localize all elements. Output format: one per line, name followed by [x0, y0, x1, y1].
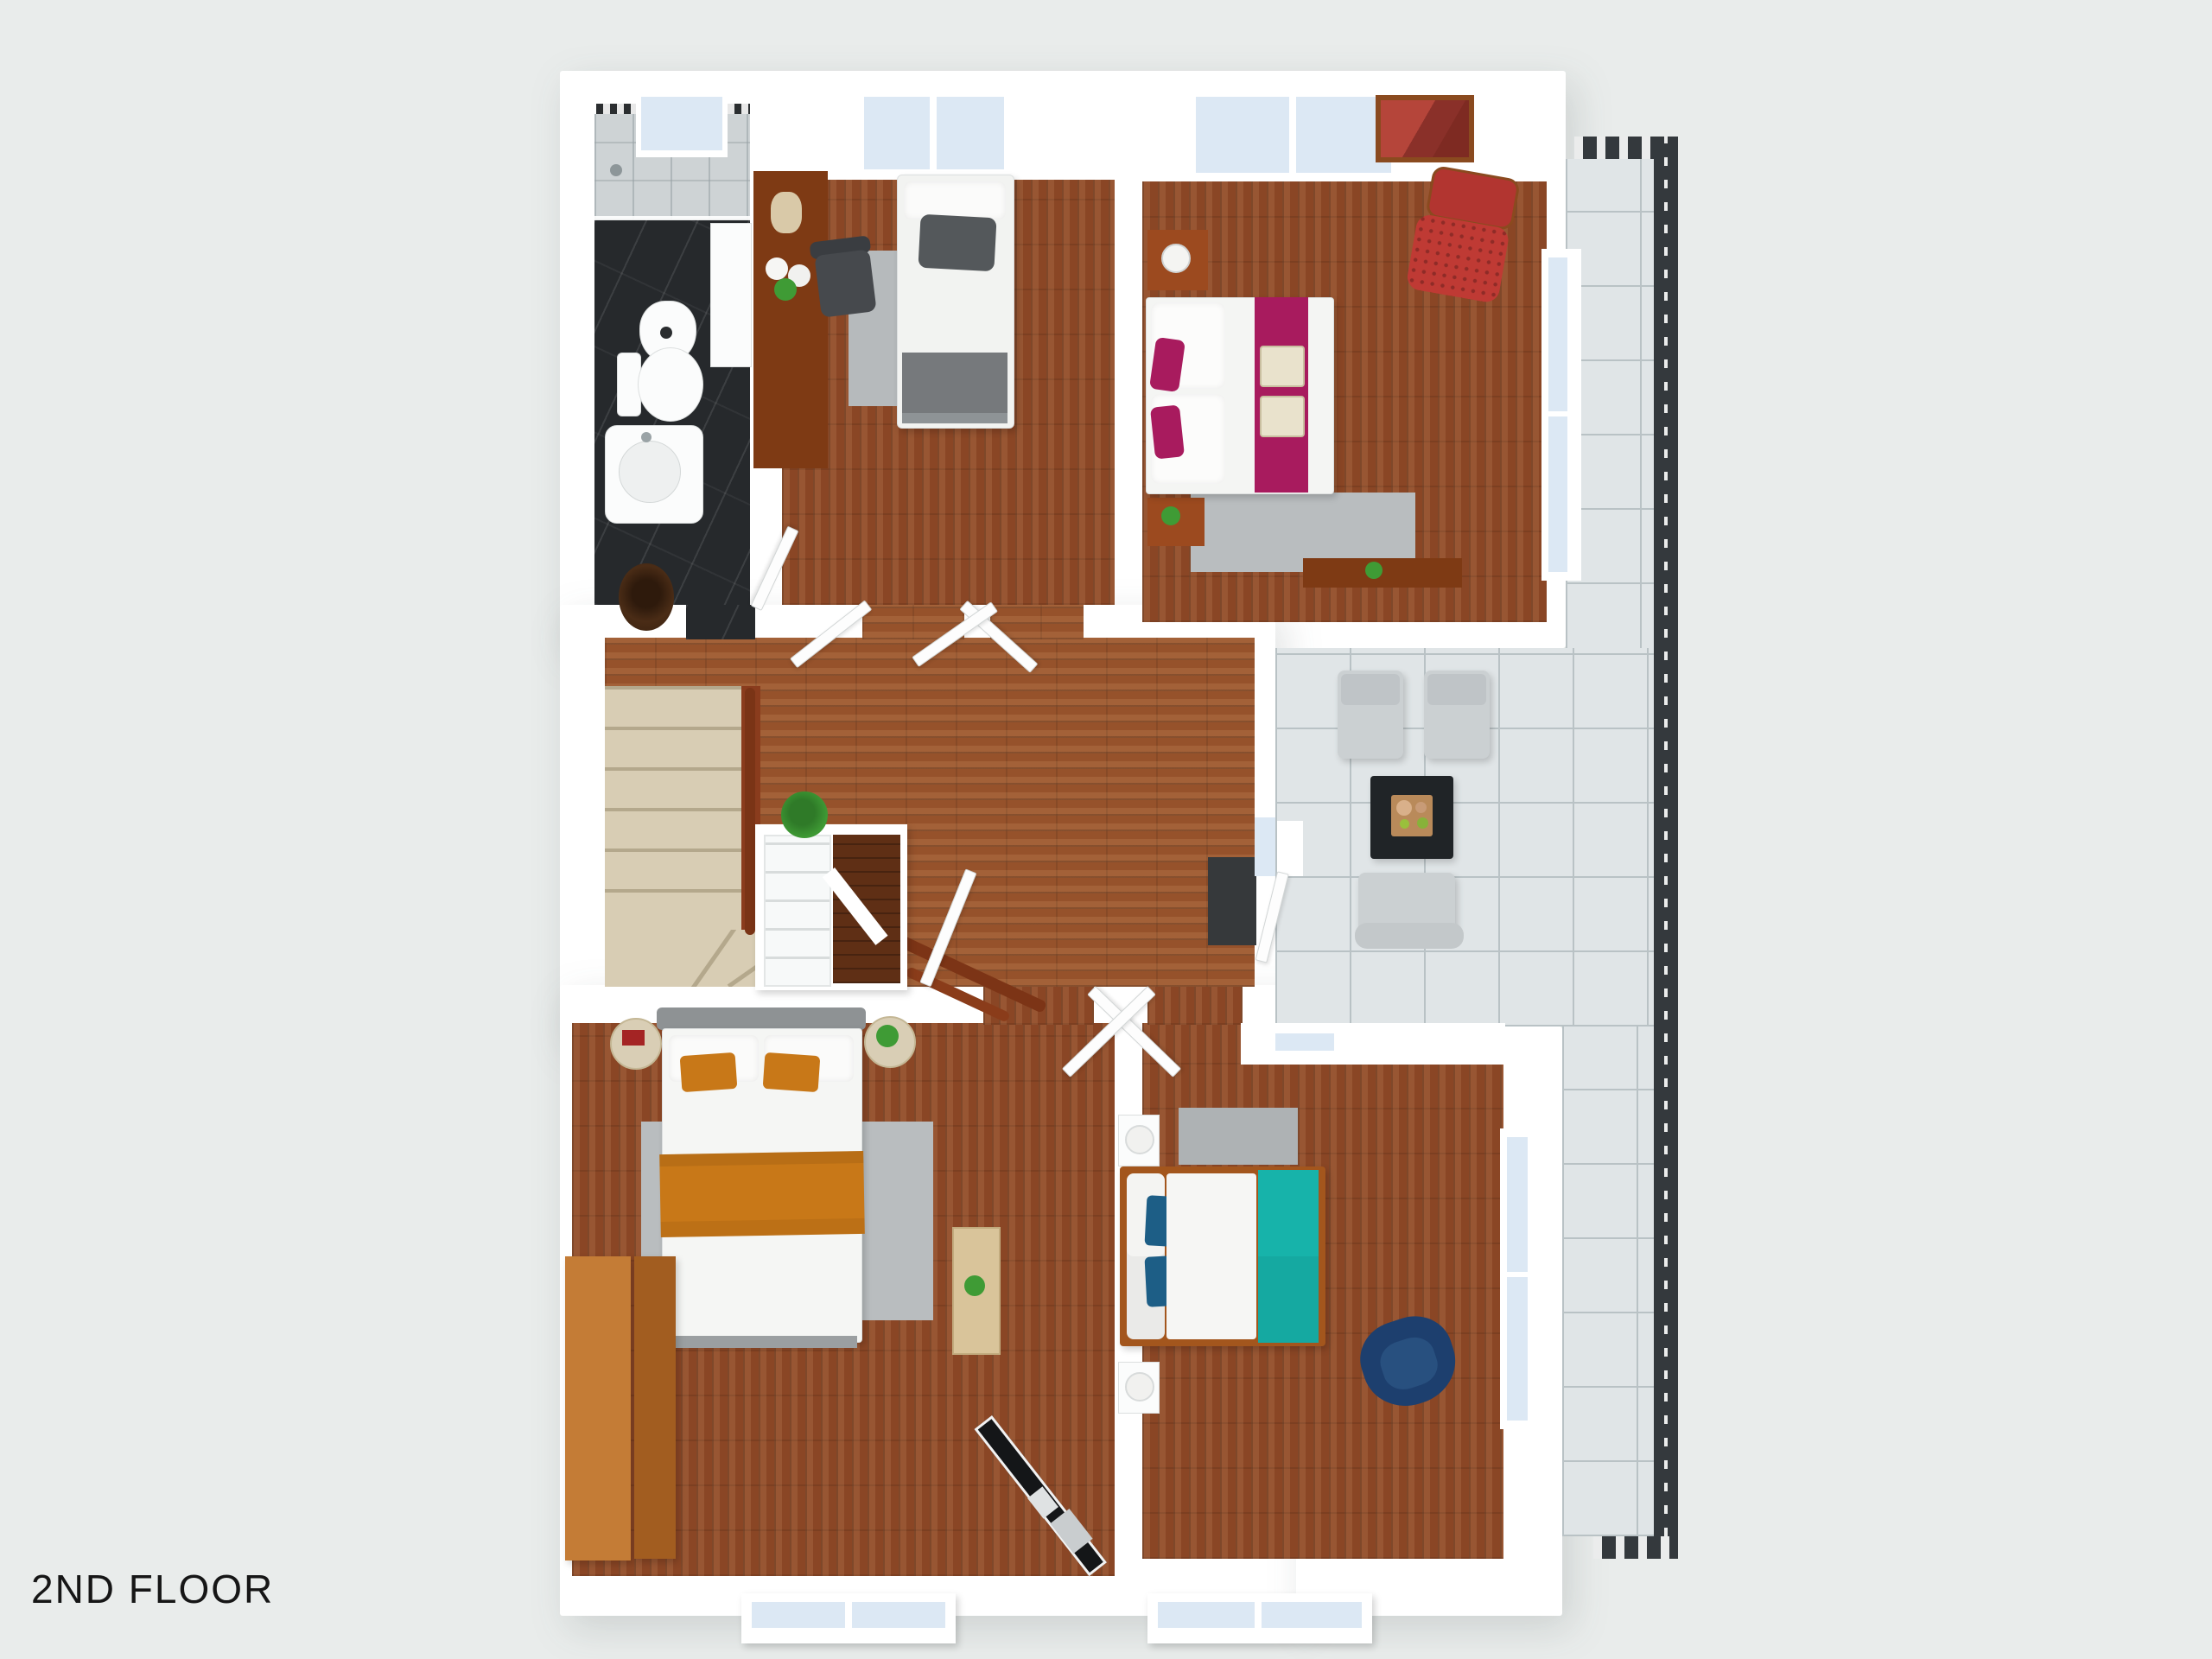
floor-plan: 2ND FLOOR: [0, 0, 2212, 1659]
master-bed-magenta-pillow: [1150, 404, 1185, 459]
plate: [1415, 802, 1427, 813]
exercise-machine: [992, 1407, 1122, 1576]
teal-bedroom-north-wall: [1241, 1023, 1272, 1065]
bathroom-doorway-threshold: [686, 605, 755, 639]
sink-basin: [619, 441, 681, 503]
table-lamp: [1125, 1372, 1154, 1402]
stair-handrail: [745, 688, 755, 935]
bathroom-cabinet: [710, 223, 752, 367]
teal-blanket: [1258, 1170, 1319, 1343]
floor-label: 2ND FLOOR: [31, 1566, 274, 1612]
terrace-door-glass: [1255, 817, 1275, 876]
shower-glass-divider: [594, 216, 750, 220]
terrace-floor-south: [1562, 1027, 1654, 1536]
desk-plant: [774, 278, 797, 301]
sideboard: [1303, 558, 1462, 588]
window-mullion: [845, 1602, 852, 1628]
desk-cup: [766, 257, 788, 280]
serving-tray: [1391, 795, 1433, 836]
skylight-window: [864, 97, 930, 169]
bed-headboard: [657, 1007, 866, 1030]
orange-blanket: [659, 1151, 865, 1237]
decor-vase: [619, 563, 674, 631]
lounge-chair-back-cushion: [1341, 674, 1400, 705]
teal-bedroom-north-wall: [1338, 1023, 1505, 1065]
bed-base: [665, 1336, 857, 1348]
terrace-railing-bottom: [1593, 1536, 1678, 1559]
cup: [1400, 819, 1409, 829]
terrace-door-glass: [1275, 1033, 1334, 1051]
desk-chair-seat: [814, 249, 876, 317]
orange-accent-pillow: [680, 1052, 738, 1092]
desk-vase: [771, 192, 802, 233]
table-lamp: [1125, 1125, 1154, 1154]
single-bed-base: [902, 413, 1007, 423]
dark-mat: [1208, 857, 1256, 945]
single-bed-pillow: [904, 181, 1006, 219]
book: [622, 1030, 645, 1046]
wardrobe-left-panel: [565, 1256, 631, 1560]
hallway-plant: [781, 791, 828, 838]
staircase: [605, 686, 741, 930]
window: [1507, 1137, 1528, 1421]
terrace-chair-front: [1355, 923, 1464, 949]
breakfast-tray: [1260, 346, 1305, 387]
breakfast-tray: [1260, 396, 1305, 437]
cup: [1417, 817, 1428, 829]
teal-bedroom-head-rug: [1179, 1108, 1298, 1165]
red-chair-seat: [1405, 213, 1510, 304]
wardrobe-right-panel: [634, 1256, 676, 1559]
plate: [1396, 800, 1412, 816]
window-mullion: [1255, 1602, 1262, 1628]
table-lamp: [1161, 244, 1191, 273]
side-table-plant: [876, 1025, 899, 1047]
orange-accent-pillow: [763, 1052, 821, 1092]
skylight-window: [641, 97, 722, 150]
winder-edge: [685, 930, 736, 987]
coffee-table-plant: [964, 1275, 985, 1296]
master-bed-runner: [1255, 297, 1308, 493]
window-mullion: [1548, 411, 1567, 416]
wall-mirror: [1376, 95, 1474, 162]
bidet-drain: [660, 327, 672, 339]
teal-bed-duvet: [1166, 1173, 1256, 1339]
skylight-window: [937, 97, 1004, 169]
toilet: [638, 347, 703, 422]
terrace-door-step: [1277, 821, 1303, 876]
nightstand-plant: [1161, 506, 1180, 525]
sideboard-plant: [1365, 562, 1382, 579]
desk-chair: [809, 235, 882, 325]
doorway-threshold: [1147, 987, 1243, 1025]
shower-head-icon: [610, 164, 622, 176]
single-bed-foot-blanket: [902, 353, 1007, 416]
single-bed-gray-pillow: [918, 214, 996, 272]
skylight-window: [1196, 97, 1289, 173]
lounge-chair-back-cushion: [1427, 674, 1486, 705]
sink-faucet-icon: [641, 432, 652, 442]
window-mullion: [1507, 1272, 1528, 1277]
open-shelf-unit: [764, 835, 831, 987]
terrace-railing-right: [1654, 137, 1678, 1559]
